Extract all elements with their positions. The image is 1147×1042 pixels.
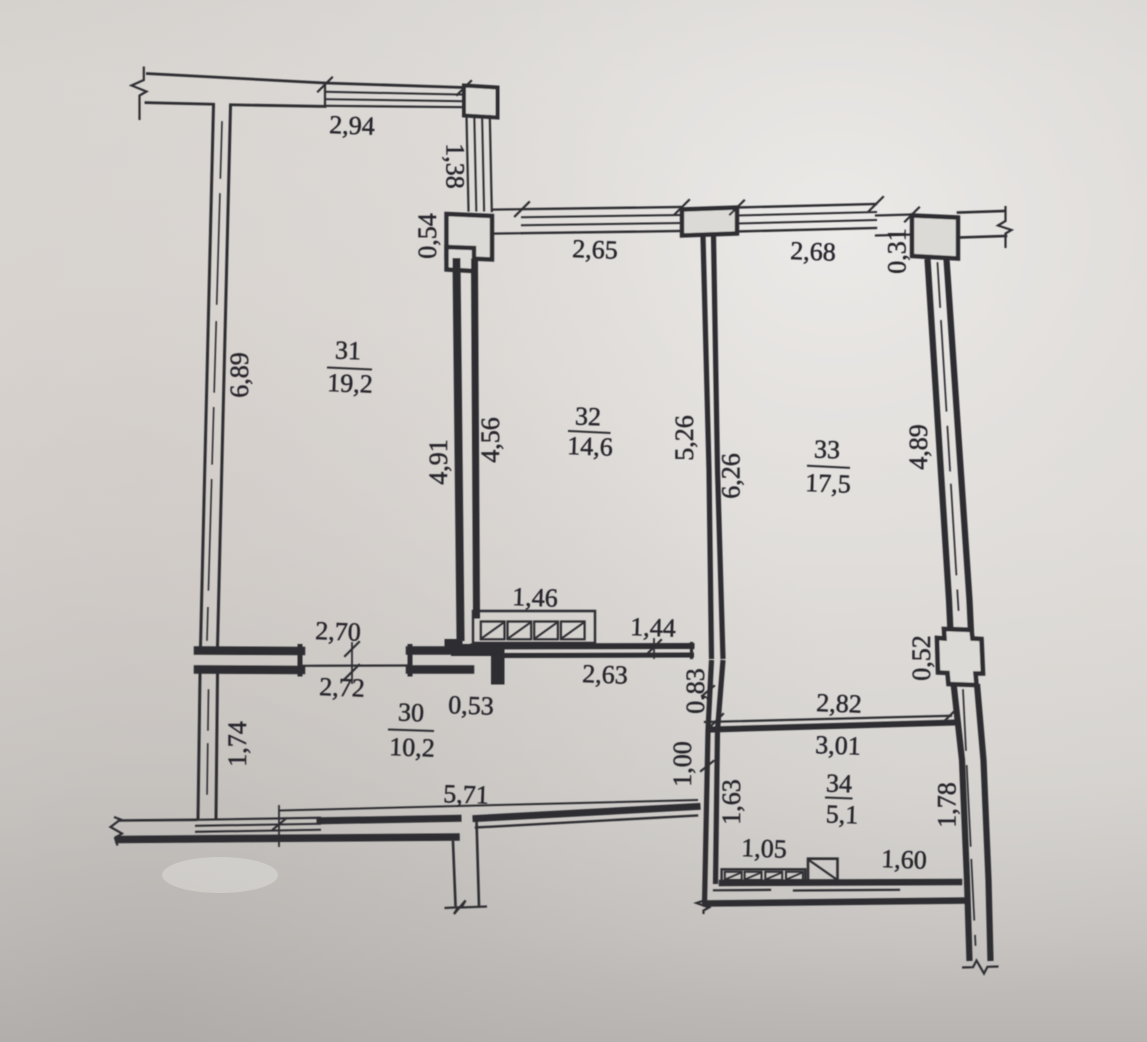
- svg-text:2,65: 2,65: [572, 234, 618, 265]
- svg-text:0,53: 0,53: [448, 690, 494, 721]
- svg-text:6,26: 6,26: [716, 453, 745, 499]
- svg-text:2,94: 2,94: [329, 110, 375, 141]
- svg-text:1,74: 1,74: [223, 721, 252, 767]
- svg-text:19,2: 19,2: [327, 368, 373, 399]
- svg-text:1,46: 1,46: [512, 582, 558, 613]
- svg-text:1,05: 1,05: [741, 833, 787, 864]
- svg-text:4,56: 4,56: [476, 417, 505, 463]
- svg-text:5,1: 5,1: [825, 799, 858, 829]
- svg-text:6,89: 6,89: [225, 352, 254, 398]
- svg-text:1,00: 1,00: [668, 741, 697, 787]
- svg-text:4,89: 4,89: [904, 424, 933, 470]
- svg-text:33: 33: [814, 435, 841, 465]
- svg-text:14,6: 14,6: [567, 431, 613, 462]
- svg-text:2,82: 2,82: [816, 688, 862, 719]
- svg-text:2,68: 2,68: [790, 236, 836, 267]
- svg-text:2,72: 2,72: [319, 672, 365, 703]
- svg-text:1,38: 1,38: [441, 143, 470, 189]
- svg-text:1,63: 1,63: [717, 779, 746, 825]
- svg-text:1,78: 1,78: [932, 782, 961, 828]
- svg-text:34: 34: [826, 769, 853, 799]
- svg-text:3,01: 3,01: [815, 730, 861, 761]
- svg-text:17,5: 17,5: [805, 468, 851, 499]
- svg-text:0,52: 0,52: [907, 635, 936, 681]
- svg-text:4,91: 4,91: [424, 439, 453, 485]
- svg-text:31: 31: [335, 336, 362, 366]
- svg-text:32: 32: [575, 402, 602, 432]
- svg-text:2,70: 2,70: [315, 616, 361, 647]
- svg-text:30: 30: [398, 698, 425, 728]
- svg-text:0,83: 0,83: [681, 668, 710, 714]
- svg-text:5,26: 5,26: [670, 415, 699, 461]
- svg-text:5,71: 5,71: [443, 779, 489, 810]
- svg-text:1,44: 1,44: [630, 612, 676, 643]
- svg-text:2,63: 2,63: [582, 659, 628, 690]
- svg-text:1,60: 1,60: [881, 844, 927, 875]
- svg-text:0,31: 0,31: [882, 228, 911, 274]
- svg-text:10,2: 10,2: [389, 732, 435, 763]
- svg-text:0,54: 0,54: [413, 213, 442, 259]
